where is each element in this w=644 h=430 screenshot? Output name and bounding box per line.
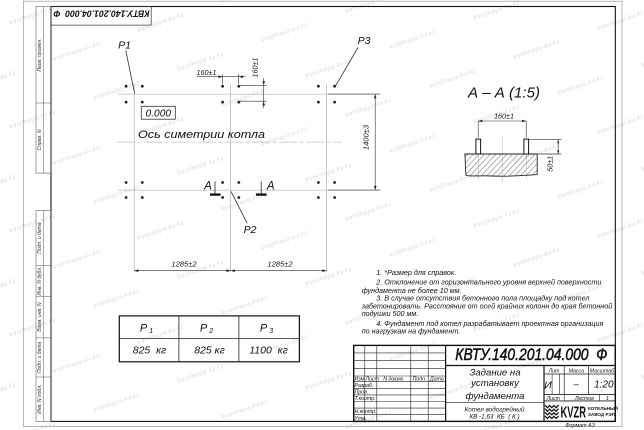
svg-text:160±1: 160±1 <box>494 112 514 121</box>
svg-text:Р 3: Р 3 <box>260 322 273 335</box>
svg-text:Н.контр.: Н.контр. <box>355 409 377 415</box>
svg-text:kotelnaya-kv.kz: kotelnaya-kv.kz <box>220 294 269 317</box>
svg-text:Разраб.: Разраб. <box>355 383 374 389</box>
svg-text:Перв. примен.: Перв. примен. <box>37 38 43 71</box>
svg-text:подушки 500 мм.: подушки 500 мм. <box>362 309 419 318</box>
svg-text:kotelnaya-kv.kz: kotelnaya-kv.kz <box>596 9 644 32</box>
svg-text:P1: P1 <box>118 40 131 52</box>
svg-text:Дата: Дата <box>429 376 444 382</box>
svg-text:kotelnaya-kv.kz: kotelnaya-kv.kz <box>304 161 353 184</box>
svg-text:Взам. инв. N: Взам. инв. N <box>37 302 43 332</box>
svg-text:kotelnaya-kv.kz: kotelnaya-kv.kz <box>596 217 644 240</box>
svg-text:kotelnaya-kv.kz: kotelnaya-kv.kz <box>640 358 644 381</box>
svg-text:kotelnaya-kv.kz: kotelnaya-kv.kz <box>640 150 644 173</box>
svg-text:КОТЕЛЬНЫЙ: КОТЕЛЬНЫЙ <box>588 404 618 411</box>
svg-text:kotelnaya-kv.kz: kotelnaya-kv.kz <box>512 38 561 61</box>
svg-text:kotelnaya-kv.kz: kotelnaya-kv.kz <box>8 108 57 131</box>
svg-text:0.000: 0.000 <box>146 108 172 119</box>
svg-text:825 кг: 825 кг <box>194 345 225 357</box>
svg-text:Пров.: Пров. <box>355 389 369 395</box>
svg-text:КВ -1,63 КБ ( К ): КВ -1,63 КБ ( К ) <box>469 414 519 421</box>
svg-text:kotelnaya-kv.kz: kotelnaya-kv.kz <box>512 246 561 269</box>
svg-text:KVZR: KVZR <box>561 404 587 421</box>
svg-text:1400±3: 1400±3 <box>362 124 371 150</box>
svg-text:А: А <box>266 180 275 192</box>
svg-text:N докум.: N докум. <box>383 376 404 382</box>
svg-text:kotelnaya-kv.kz: kotelnaya-kv.kz <box>472 0 521 22</box>
svg-text:160±1: 160±1 <box>251 58 260 78</box>
svg-text:kotelnaya-kv.kz: kotelnaya-kv.kz <box>596 113 644 136</box>
svg-text:kotelnaya-kv.kz: kotelnaya-kv.kz <box>8 316 57 339</box>
svg-text:kotelnaya-kv.kz: kotelnaya-kv.kz <box>0 277 17 300</box>
svg-text:Подп.: Подп. <box>413 376 427 382</box>
svg-text:kotelnaya-kv.kz: kotelnaya-kv.kz <box>136 219 185 242</box>
svg-text:kotelnaya-kv.kz: kotelnaya-kv.kz <box>388 340 437 363</box>
svg-text:kotelnaya-kv.kz: kotelnaya-kv.kz <box>8 212 57 235</box>
svg-text:kotelnaya-kv.kz: kotelnaya-kv.kz <box>52 144 101 167</box>
svg-text:Задание на: Задание на <box>469 367 520 378</box>
svg-text:КВТУ.140.201.04.000 Ф: КВТУ.140.201.04.000 Ф <box>455 346 607 364</box>
svg-text:ЗАВОД РЭП: ЗАВОД РЭП <box>588 412 615 417</box>
svg-text:kotelnaya-kv.kz: kotelnaya-kv.kz <box>556 74 605 97</box>
svg-text:kotelnaya-kv.kz: kotelnaya-kv.kz <box>0 173 17 196</box>
svg-text:kotelnaya-kv.kz: kotelnaya-kv.kz <box>52 40 101 63</box>
svg-text:–: – <box>573 379 580 390</box>
svg-text:kotelnaya-kv.kz: kotelnaya-kv.kz <box>176 362 225 385</box>
svg-text:1. *Размер для справок.: 1. *Размер для справок. <box>376 268 456 277</box>
svg-text:kotelnaya-kv.kz: kotelnaya-kv.kz <box>344 0 393 15</box>
svg-text:kotelnaya-kv.kz: kotelnaya-kv.kz <box>220 86 269 109</box>
svg-text:1:20: 1:20 <box>594 380 614 391</box>
svg-text:Масса: Масса <box>569 368 584 374</box>
svg-text:kotelnaya-kv.kz: kotelnaya-kv.kz <box>304 369 353 392</box>
svg-text:kotelnaya-kv.kz: kotelnaya-kv.kz <box>388 132 437 155</box>
svg-text:kotelnaya-kv.kz: kotelnaya-kv.kz <box>8 4 57 27</box>
svg-text:Р 1: Р 1 <box>140 322 153 335</box>
svg-text:825 кг: 825 кг <box>133 345 167 357</box>
svg-text:1285±2: 1285±2 <box>267 260 293 269</box>
svg-text:kotelnaya-kv.kz: kotelnaya-kv.kz <box>52 352 101 375</box>
svg-text:Лит: Лит <box>548 368 560 374</box>
svg-text:Подп. и дата: Подп. и дата <box>37 222 43 254</box>
svg-text:kotelnaya-kv.kz: kotelnaya-kv.kz <box>344 200 393 223</box>
svg-text:Масштаб: Масштаб <box>590 368 615 374</box>
svg-text:160±1: 160±1 <box>197 68 217 77</box>
svg-text:kotelnaya-kv.kz: kotelnaya-kv.kz <box>428 171 477 194</box>
svg-text:1: 1 <box>606 396 609 402</box>
svg-text:kotelnaya-kv.kz: kotelnaya-kv.kz <box>344 96 393 119</box>
svg-text:kotelnaya-kv.kz: kotelnaya-kv.kz <box>260 21 309 44</box>
svg-text:А: А <box>203 180 212 192</box>
svg-text:Инв. N дубл.: Инв. N дубл. <box>37 267 43 296</box>
svg-text:1100 кг: 1100 кг <box>249 345 288 357</box>
svg-text:Т.контр.: Т.контр. <box>355 396 376 402</box>
svg-text:КВТУ.140.201.04.000 Ф: КВТУ.140.201.04.000 Ф <box>53 9 150 19</box>
svg-text:Подп. и дата: Подп. и дата <box>37 342 43 374</box>
svg-text:kotelnaya-kv.kz: kotelnaya-kv.kz <box>176 154 225 177</box>
svg-text:Утв.: Утв. <box>355 416 367 422</box>
svg-text:kotelnaya-kv.kz: kotelnaya-kv.kz <box>640 46 644 69</box>
svg-text:kotelnaya-kv.kz: kotelnaya-kv.kz <box>596 321 644 344</box>
svg-text:kotelnaya-kv.kz: kotelnaya-kv.kz <box>388 28 437 51</box>
svg-text:P2: P2 <box>244 224 257 236</box>
svg-text:Ось симетрии котла: Ось симетрии котла <box>138 129 265 141</box>
svg-text:А – А (1:5): А – А (1:5) <box>467 85 540 101</box>
svg-text:установку: установку <box>470 378 520 389</box>
svg-text:фундамента: фундамента <box>466 391 525 402</box>
svg-text:kotelnaya-kv.kz: kotelnaya-kv.kz <box>92 287 141 310</box>
svg-text:1285±2: 1285±2 <box>171 260 197 269</box>
svg-text:kotelnaya-kv.kz: kotelnaya-kv.kz <box>304 265 353 288</box>
svg-text:kotelnaya-kv.kz: kotelnaya-kv.kz <box>472 207 521 230</box>
svg-text:kotelnaya-kv.kz: kotelnaya-kv.kz <box>640 254 644 277</box>
svg-text:kotelnaya-kv.kz: kotelnaya-kv.kz <box>388 236 437 259</box>
svg-text:И: И <box>544 380 552 391</box>
svg-text:kotelnaya-kv.kz: kotelnaya-kv.kz <box>260 125 309 148</box>
svg-text:Листов: Листов <box>574 396 594 402</box>
svg-text:Инв. N подл.: Инв. N подл. <box>37 385 43 414</box>
svg-text:kotelnaya-kv.kz: kotelnaya-kv.kz <box>220 398 269 421</box>
svg-text:kotelnaya-kv.kz: kotelnaya-kv.kz <box>220 0 269 5</box>
svg-text:Справ. N: Справ. N <box>37 129 43 150</box>
svg-text:kotelnaya-kv.kz: kotelnaya-kv.kz <box>0 69 17 92</box>
svg-text:по нагрузкам на фундамент.: по нагрузкам на фундамент. <box>362 327 461 336</box>
svg-text:P3: P3 <box>358 35 371 47</box>
svg-text:kotelnaya-kv.kz: kotelnaya-kv.kz <box>0 381 17 404</box>
svg-text:Р 2: Р 2 <box>200 322 213 335</box>
svg-text:Изм.Лист: Изм.Лист <box>355 376 380 382</box>
svg-text:kotelnaya-kv.kz: kotelnaya-kv.kz <box>52 248 101 271</box>
svg-text:kotelnaya-kv.kz: kotelnaya-kv.kz <box>260 229 309 252</box>
svg-text:50±1: 50±1 <box>546 156 555 172</box>
svg-text:kotelnaya-kv.kz: kotelnaya-kv.kz <box>92 391 141 414</box>
svg-text:Лист: Лист <box>546 396 561 402</box>
svg-text:Котел водогрейный: Котел водогрейный <box>465 405 525 413</box>
svg-text:Формат А3: Формат А3 <box>565 423 595 429</box>
svg-text:kotelnaya-kv.kz: kotelnaya-kv.kz <box>556 178 605 201</box>
